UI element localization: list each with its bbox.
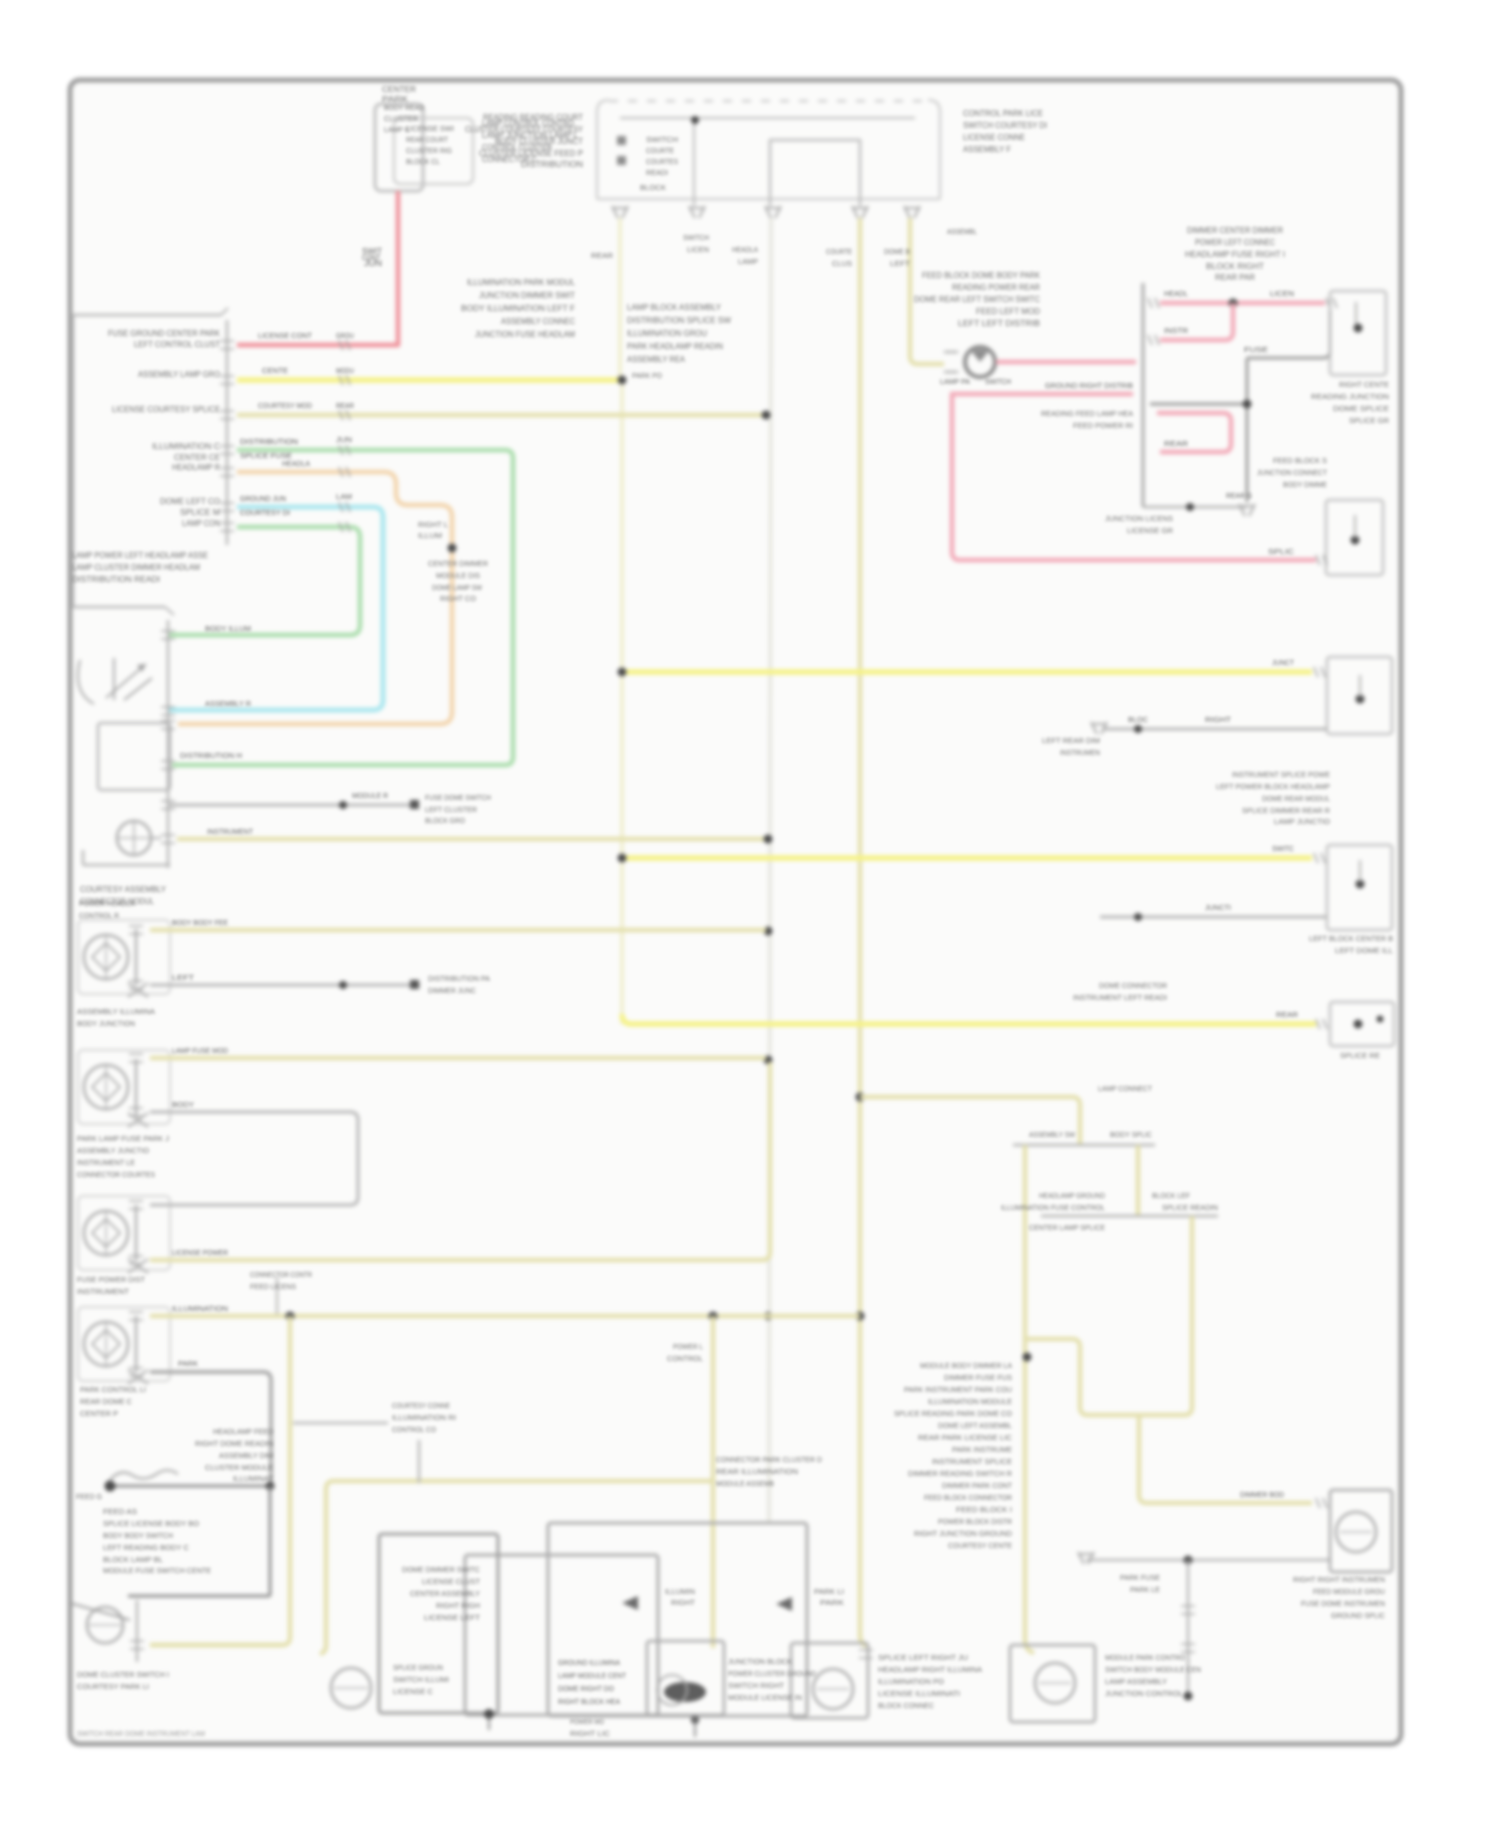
svg-text:DOME CLUSTER SWITCH I: DOME CLUSTER SWITCH I <box>77 1670 169 1679</box>
svg-text:ASSEMBL: ASSEMBL <box>947 229 977 236</box>
svg-text:GROUND RIGHT DISTRIB: GROUND RIGHT DISTRIB <box>1045 381 1133 390</box>
svg-text:SPLICE RE: SPLICE RE <box>1340 1053 1380 1060</box>
svg-text:RIGHT JUNCTION GROUND: RIGHT JUNCTION GROUND <box>914 1529 1013 1538</box>
svg-text:COURTESY PARK LI: COURTESY PARK LI <box>77 1682 149 1691</box>
svg-text:ASSEMBLY F: ASSEMBLY F <box>963 145 1011 154</box>
svg-text:GROUND ILLUMINA: GROUND ILLUMINA <box>558 1660 620 1667</box>
svg-text:BLOC: BLOC <box>1128 717 1148 724</box>
svg-text:PARK FUSE: PARK FUSE <box>1120 1575 1160 1582</box>
svg-text:REAR PARK LICENSE LIC: REAR PARK LICENSE LIC <box>918 1433 1013 1442</box>
svg-text:PARK: PARK <box>178 1361 198 1368</box>
svg-text:BODY CLUSTER JUNCT: BODY CLUSTER JUNCT <box>495 137 583 146</box>
svg-text:SWITCH RIGHT: SWITCH RIGHT <box>728 1681 784 1690</box>
svg-text:SPLICE READIN: SPLICE READIN <box>1162 1205 1218 1212</box>
svg-text:READI: READI <box>646 170 668 177</box>
svg-text:BODY READ: BODY READ <box>384 105 424 112</box>
svg-text:REAR COURT: REAR COURT <box>406 137 449 144</box>
svg-text:COURTE: COURTE <box>646 148 674 155</box>
svg-text:LAMP CLUSTER DIMMER HEADLAM: LAMP CLUSTER DIMMER HEADLAM <box>72 563 200 572</box>
svg-text:ILLUMIN: ILLUMIN <box>665 1589 695 1596</box>
svg-text:CLUSTER LICENSE FEED P: CLUSTER LICENSE FEED P <box>479 149 583 158</box>
svg-text:READING JUNCTION: READING JUNCTION <box>1311 392 1389 401</box>
svg-text:CLUSTER COURTESY COURTESY: CLUSTER COURTESY COURTESY <box>465 125 584 134</box>
svg-text:DISTRIBUTION: DISTRIBUTION <box>240 437 298 446</box>
svg-text:ILLUMINATION: ILLUMINATION <box>172 1306 228 1313</box>
svg-text:CENTE: CENTE <box>262 366 288 375</box>
svg-text:ILLUMINATION PO: ILLUMINATION PO <box>878 1677 944 1686</box>
svg-text:MODULE FUSE SWITCH CENTE: MODULE FUSE SWITCH CENTE <box>103 1566 211 1575</box>
svg-text:LEFT LEFT DISTRIB: LEFT LEFT DISTRIB <box>958 319 1040 328</box>
svg-text:ILLUMINATION RI: ILLUMINATION RI <box>392 1415 456 1422</box>
svg-text:BLOCK CONNEC: BLOCK CONNEC <box>878 1701 935 1710</box>
svg-text:POWER CLUSTER GROUND: POWER CLUSTER GROUND <box>728 1669 817 1678</box>
svg-text:RIGHT DOME READIN: RIGHT DOME READIN <box>195 1439 273 1448</box>
svg-text:LAMP: LAMP <box>738 259 758 266</box>
svg-text:LICENSE GR: LICENSE GR <box>1127 526 1174 535</box>
svg-text:BODY: BODY <box>172 1102 194 1109</box>
svg-text:LAMP CONNECT: LAMP CONNECT <box>1098 1084 1152 1093</box>
svg-text:CONNECTOR CONTR: CONNECTOR CONTR <box>250 1272 312 1279</box>
svg-text:JUNCTION LICENS: JUNCTION LICENS <box>1105 514 1173 523</box>
svg-text:ASSEMBLY LAMP GRO: ASSEMBLY LAMP GRO <box>138 370 220 379</box>
svg-text:LEFT READING BODY C: LEFT READING BODY C <box>103 1543 190 1552</box>
svg-text:JUNCTION FUSE HEADLAM: JUNCTION FUSE HEADLAM <box>475 330 575 339</box>
svg-text:LICENSE LEFT: LICENSE LEFT <box>424 1613 480 1622</box>
svg-text:BLOCK CL: BLOCK CL <box>406 159 440 166</box>
svg-text:DOME CONNECTOR: DOME CONNECTOR <box>1099 981 1168 990</box>
svg-text:FUSE POWER DIST: FUSE POWER DIST <box>77 1275 145 1284</box>
svg-text:BODY ILLUMINATION LEFT F: BODY ILLUMINATION LEFT F <box>461 304 575 313</box>
svg-text:HEADLAMP FUSE RIGHT I: HEADLAMP FUSE RIGHT I <box>1185 250 1285 259</box>
svg-text:READING FEED LAMP HEA: READING FEED LAMP HEA <box>1041 409 1133 418</box>
svg-text:FUSE GROUND CENTER PARK: FUSE GROUND CENTER PARK <box>108 329 221 338</box>
svg-text:DISTRIBUTION SPLICE SW: DISTRIBUTION SPLICE SW <box>627 316 731 325</box>
svg-text:PARK: PARK <box>820 1600 844 1607</box>
svg-text:BLOCK LEF: BLOCK LEF <box>1152 1193 1190 1200</box>
svg-text:ASSEMBLY ILLUMINA: ASSEMBLY ILLUMINA <box>77 1007 155 1016</box>
svg-text:CONTROL: CONTROL <box>667 1356 703 1363</box>
svg-text:SWITC: SWITC <box>1272 844 1295 853</box>
svg-text:RIGHT CO: RIGHT CO <box>440 596 477 603</box>
svg-text:BODY DIMME: BODY DIMME <box>1283 480 1327 489</box>
svg-text:LICEN: LICEN <box>687 247 709 254</box>
svg-text:DISTRIBUTION READI: DISTRIBUTION READI <box>72 575 160 584</box>
svg-text:DIMMER BOD: DIMMER BOD <box>1240 1490 1285 1499</box>
svg-text:POWER MO: POWER MO <box>570 1719 604 1726</box>
svg-text:SPLIC: SPLIC <box>1268 547 1295 556</box>
svg-text:JUNCTION DIMMER SWIT: JUNCTION DIMMER SWIT <box>479 291 575 300</box>
svg-text:FEED BLOCK I: FEED BLOCK I <box>956 1505 1012 1514</box>
svg-text:LICENSE SWI: LICENSE SWI <box>406 126 454 133</box>
svg-text:FEED AS: FEED AS <box>103 1507 137 1516</box>
svg-text:SPLICE LICENSE BODY BO: SPLICE LICENSE BODY BO <box>103 1519 199 1528</box>
svg-text:HEADLAMP RIGHT ILLUMINA: HEADLAMP RIGHT ILLUMINA <box>878 1665 982 1674</box>
svg-text:DOME REAR LEFT SWITCH SWITC: DOME REAR LEFT SWITCH SWITC <box>914 295 1040 304</box>
svg-text:LAMP FUSE MOD: LAMP FUSE MOD <box>172 1048 228 1055</box>
svg-text:DIMMER PARK CONT: DIMMER PARK CONT <box>942 1481 1012 1490</box>
svg-text:CONTROL R: CONTROL R <box>79 911 120 920</box>
svg-text:LICENSE COURTESY SPLICE: LICENSE COURTESY SPLICE <box>112 405 220 414</box>
svg-text:FEED BLOCK S: FEED BLOCK S <box>1273 456 1327 465</box>
svg-text:CENTER DIMMER: CENTER DIMMER <box>428 561 488 568</box>
svg-text:JUNCTION CONTROL: JUNCTION CONTROL <box>1105 1689 1183 1698</box>
svg-text:FEED POWER RI: FEED POWER RI <box>1073 421 1133 430</box>
svg-text:MODULE DIS: MODULE DIS <box>436 573 480 580</box>
svg-text:LEFT CLUSTER: LEFT CLUSTER <box>425 807 477 814</box>
svg-text:PARK PO: PARK PO <box>632 373 663 380</box>
svg-text:FEED BLOCK CONNECTOR: FEED BLOCK CONNECTOR <box>924 1493 1013 1502</box>
svg-text:REAR DOME C: REAR DOME C <box>80 1397 133 1406</box>
svg-text:INSTRUMEN: INSTRUMEN <box>1060 748 1100 757</box>
svg-text:SWITCH: SWITCH <box>646 137 678 144</box>
svg-text:LAMP ASSEMBLY: LAMP ASSEMBLY <box>1105 1677 1167 1686</box>
svg-text:CONTROL PARK LICE: CONTROL PARK LICE <box>963 109 1043 118</box>
svg-text:SWITCH: SWITCH <box>683 235 709 242</box>
svg-text:HEADLA: HEADLA <box>732 247 758 254</box>
svg-text:CONT: CONT <box>362 253 380 262</box>
svg-text:HEADLA: HEADLA <box>282 459 310 468</box>
svg-text:MODULE BODY DIMMER LA: MODULE BODY DIMMER LA <box>920 1361 1012 1370</box>
svg-text:DIMMER CENTER DIMMER: DIMMER CENTER DIMMER <box>1187 226 1283 235</box>
svg-text:ILLUMINAT: ILLUMINAT <box>233 1474 273 1483</box>
svg-text:FEED LEFT MOD: FEED LEFT MOD <box>976 307 1040 316</box>
svg-text:COURTES: COURTES <box>646 159 678 166</box>
svg-text:CLUSTER MODULE: CLUSTER MODULE <box>205 1463 273 1472</box>
svg-text:RIGHT RIGH: RIGHT RIGH <box>436 1601 480 1610</box>
svg-text:RIGHT RIGHT INSTRUMEN: RIGHT RIGHT INSTRUMEN <box>1293 1575 1385 1584</box>
svg-text:INSTRUMENT: INSTRUMENT <box>77 1287 129 1296</box>
svg-text:PARK LE: PARK LE <box>1130 1587 1160 1594</box>
svg-text:LICENSE POWER: LICENSE POWER <box>172 1250 228 1257</box>
svg-text:INSTRUMENT LE: INSTRUMENT LE <box>77 1158 135 1167</box>
svg-text:BLOCK: BLOCK <box>640 185 666 192</box>
svg-text:LEFT BLOCK CENTER B: LEFT BLOCK CENTER B <box>1309 934 1393 943</box>
svg-text:CONTROL CO: CONTROL CO <box>392 1427 437 1434</box>
svg-text:ILLUMINATION PARK MODUL: ILLUMINATION PARK MODUL <box>467 278 576 287</box>
svg-text:COURTESY CENTE: COURTESY CENTE <box>948 1541 1012 1550</box>
svg-text:COURTESY DI: COURTESY DI <box>240 508 290 517</box>
svg-text:INSTRUMENT: INSTRUMENT <box>207 827 253 836</box>
svg-text:PARK LI: PARK LI <box>814 1589 844 1596</box>
svg-text:RIGHT: RIGHT <box>1205 717 1232 724</box>
svg-text:JUNCT: JUNCT <box>1272 658 1294 667</box>
svg-text:DOME SPLICE: DOME SPLICE <box>1333 404 1389 413</box>
svg-text:SWITCH COURTESY DI: SWITCH COURTESY DI <box>963 121 1047 130</box>
svg-text:ILLUMINATION FUSE CONTROL: ILLUMINATION FUSE CONTROL <box>1001 1205 1105 1212</box>
svg-text:SWITCH ILLUMI: SWITCH ILLUMI <box>393 1677 449 1684</box>
svg-text:LEFT REAR DIM: LEFT REAR DIM <box>1042 736 1100 745</box>
svg-text:INSTRUMENT SPLICE: INSTRUMENT SPLICE <box>932 1457 1012 1466</box>
svg-text:RIGHT BLOCK HEA: RIGHT BLOCK HEA <box>558 1699 620 1706</box>
svg-text:REAR: REAR <box>1276 1010 1299 1019</box>
svg-text:DIMMER FUSE FUS: DIMMER FUSE FUS <box>944 1373 1012 1382</box>
svg-text:PARK INSTRUME: PARK INSTRUME <box>952 1445 1012 1454</box>
svg-text:GROUND SPLIC: GROUND SPLIC <box>1331 1611 1386 1620</box>
svg-text:SPLICE GROUN: SPLICE GROUN <box>393 1665 443 1672</box>
svg-text:RIGHT CENTE: RIGHT CENTE <box>1339 380 1389 389</box>
svg-text:REAR: REAR <box>591 253 613 260</box>
svg-text:PARK LAMP FUSE PARK J: PARK LAMP FUSE PARK J <box>77 1134 169 1143</box>
svg-text:BODY SPLIC: BODY SPLIC <box>1110 1132 1152 1139</box>
svg-text:LEFT POWER BLOCK HEADLAMP: LEFT POWER BLOCK HEADLAMP <box>1216 782 1330 791</box>
svg-text:JUNCTION BLOCK: JUNCTION BLOCK <box>728 1657 792 1666</box>
svg-text:ILLUMINATION MODULE: ILLUMINATION MODULE <box>928 1397 1012 1406</box>
svg-text:REAR ILLUMINATION: REAR ILLUMINATION <box>716 1467 798 1476</box>
svg-text:DISTRIBUTION PA: DISTRIBUTION PA <box>428 976 490 983</box>
svg-text:CENTER CE: CENTER CE <box>174 453 220 462</box>
svg-text:COURTE: COURTE <box>826 249 852 256</box>
svg-text:COURTESY CONNE: COURTESY CONNE <box>392 1403 450 1410</box>
svg-text:ASSEMBLY CONNEC: ASSEMBLY CONNEC <box>501 317 575 326</box>
svg-text:RIGHT LIC: RIGHT LIC <box>570 1731 610 1738</box>
svg-text:FEED G: FEED G <box>76 1494 102 1501</box>
svg-text:ILLUM: ILLUM <box>418 533 442 540</box>
svg-text:LICENSE ILLUMINATI: LICENSE ILLUMINATI <box>878 1689 960 1698</box>
svg-text:FUSE: FUSE <box>1244 345 1268 354</box>
svg-text:ILLUMINATION C: ILLUMINATION C <box>152 442 220 451</box>
svg-text:SWITCH REAR DOME INSTRUMENT LA: SWITCH REAR DOME INSTRUMENT LAM <box>77 1731 205 1738</box>
svg-text:CENTER LAMP SPLICE: CENTER LAMP SPLICE <box>1029 1225 1105 1232</box>
svg-text:ASSEMBLY R: ASSEMBLY R <box>205 699 252 708</box>
svg-text:DIMMER READING SWITCH R: DIMMER READING SWITCH R <box>908 1469 1013 1478</box>
svg-text:HEADLAMP FEED: HEADLAMP FEED <box>213 1427 274 1436</box>
svg-text:BLOCK RIGHT: BLOCK RIGHT <box>1206 262 1264 271</box>
svg-text:DOME RIGHT DO: DOME RIGHT DO <box>558 1686 615 1693</box>
svg-text:RIGHT: RIGHT <box>671 1600 696 1607</box>
svg-text:LEFT: LEFT <box>890 261 911 268</box>
svg-text:PARK: PARK <box>382 95 409 104</box>
svg-text:POWER HEADLA: POWER HEADLA <box>79 899 135 908</box>
svg-text:LEFT DOME ILL: LEFT DOME ILL <box>1335 946 1393 955</box>
svg-text:JUNCTION CONNECT: JUNCTION CONNECT <box>1257 468 1327 477</box>
svg-text:PARK INSTRUMENT PARK COU: PARK INSTRUMENT PARK COU <box>904 1385 1012 1394</box>
svg-text:REAR: REAR <box>336 401 354 410</box>
svg-text:SPLICE GR: SPLICE GR <box>1349 416 1390 425</box>
svg-text:MODULE PARK CONTRO: MODULE PARK CONTRO <box>1105 1653 1185 1662</box>
svg-text:HEADLAMP R: HEADLAMP R <box>172 463 220 472</box>
svg-text:CLUSTER: CLUSTER <box>384 116 418 123</box>
svg-text:REAR PAR: REAR PAR <box>1215 273 1255 282</box>
svg-text:FEED MODULE GROU: FEED MODULE GROU <box>1313 1587 1385 1596</box>
svg-text:LICEN: LICEN <box>1270 289 1294 298</box>
svg-text:LAMP JUNCTIO: LAMP JUNCTIO <box>1274 817 1330 826</box>
svg-text:COURTESY MOD: COURTESY MOD <box>258 401 313 410</box>
svg-text:FEED LICENS: FEED LICENS <box>250 1284 296 1291</box>
svg-text:BODY ILLUM: BODY ILLUM <box>205 624 251 633</box>
svg-text:DOME DIMMER SWITC: DOME DIMMER SWITC <box>402 1565 481 1574</box>
svg-text:LAM: LAM <box>336 492 352 501</box>
svg-text:BLOCK LAMP BL: BLOCK LAMP BL <box>103 1555 163 1564</box>
svg-text:LAMP CON: LAMP CON <box>182 519 220 528</box>
svg-text:PARK CONTROL LI: PARK CONTROL LI <box>80 1385 146 1394</box>
svg-text:CONNECTOR PARK CLUSTER D: CONNECTOR PARK CLUSTER D <box>716 1455 823 1464</box>
svg-text:POWER BLOCK DISTR: POWER BLOCK DISTR <box>938 1517 1013 1526</box>
svg-text:CLUSTER RIG: CLUSTER RIG <box>406 148 452 155</box>
svg-text:SWITCH BODY MODULE CEN: SWITCH BODY MODULE CEN <box>1105 1665 1201 1674</box>
svg-text:DOME LEFT ASSEMBL: DOME LEFT ASSEMBL <box>938 1421 1012 1430</box>
svg-text:DISTRIBUTION H: DISTRIBUTION H <box>180 751 242 760</box>
svg-text:READING READING COURT: READING READING COURT <box>483 113 583 122</box>
svg-text:BODY JUNCTION: BODY JUNCTION <box>77 1019 135 1028</box>
svg-text:CLUS: CLUS <box>832 261 852 268</box>
svg-text:LICENSE CONNE: LICENSE CONNE <box>963 133 1025 142</box>
svg-text:DOME REAR MODUL: DOME REAR MODUL <box>1262 794 1330 803</box>
svg-text:POWER L: POWER L <box>673 1344 703 1351</box>
svg-text:PARK HEADLAMP READIN: PARK HEADLAMP READIN <box>627 342 723 351</box>
svg-text:CENTER P: CENTER P <box>80 1409 118 1418</box>
svg-text:LEFT CONTROL CLUST: LEFT CONTROL CLUST <box>134 340 220 349</box>
svg-text:MODULE LICENSE IN: MODULE LICENSE IN <box>728 1693 802 1702</box>
svg-text:CONNECTOR COURTES: CONNECTOR COURTES <box>77 1170 155 1179</box>
svg-text:READING POWER REAR: READING POWER REAR <box>952 283 1040 292</box>
svg-text:LICENSE CLUST: LICENSE CLUST <box>422 1577 480 1586</box>
svg-text:SPLICE READING PARK DOME CO: SPLICE READING PARK DOME CO <box>894 1409 1012 1418</box>
svg-text:FUSE DOME SWITCH: FUSE DOME SWITCH <box>425 795 491 802</box>
svg-text:RIGHT L: RIGHT L <box>418 522 448 529</box>
svg-text:ASSEMBLY SW: ASSEMBLY SW <box>1029 1132 1075 1139</box>
svg-text:HEADL: HEADL <box>1164 289 1188 298</box>
svg-text:BODY BODY SWITCH: BODY BODY SWITCH <box>103 1531 173 1540</box>
svg-text:GROU: GROU <box>336 331 354 340</box>
svg-text:POWER LEFT CONNEC: POWER LEFT CONNEC <box>1195 238 1275 247</box>
svg-text:LEFT: LEFT <box>172 975 195 982</box>
svg-text:FEED BLOCK DOME BODY PARK: FEED BLOCK DOME BODY PARK <box>922 271 1041 280</box>
svg-text:INSTRUMENT SPLICE POWE: INSTRUMENT SPLICE POWE <box>1232 770 1330 779</box>
svg-text:REAR: REAR <box>1164 439 1189 448</box>
svg-text:JUN: JUN <box>336 435 352 444</box>
svg-text:HEADLAMP GROUND: HEADLAMP GROUND <box>1039 1193 1105 1200</box>
svg-text:REAR G: REAR G <box>1226 493 1252 500</box>
svg-text:ILLUMINATION GROU: ILLUMINATION GROU <box>627 329 707 338</box>
svg-text:LICENSE CONT: LICENSE CONT <box>258 331 312 340</box>
svg-text:SPLICE LEFT RIGHT JU: SPLICE LEFT RIGHT JU <box>878 1653 968 1662</box>
svg-text:COURTESY ASSEMBLY: COURTESY ASSEMBLY <box>80 885 167 894</box>
svg-text:LAMP MODULE CENT: LAMP MODULE CENT <box>558 1673 627 1680</box>
svg-text:MODULE R: MODULE R <box>352 793 388 800</box>
svg-text:DISTRIBUTION: DISTRIBUTION <box>521 160 583 169</box>
svg-text:MODU: MODU <box>336 366 354 375</box>
svg-text:FUSE DOME INSTRUMEN: FUSE DOME INSTRUMEN <box>1301 1599 1385 1608</box>
svg-text:LAMP POWER LEFT HEADLAMP ASSE: LAMP POWER LEFT HEADLAMP ASSE <box>72 551 208 560</box>
svg-text:LAMP BLOCK ASSEMBLY: LAMP BLOCK ASSEMBLY <box>627 303 722 312</box>
svg-text:DIMMER JUNC: DIMMER JUNC <box>428 988 476 995</box>
svg-text:INSTR: INSTR <box>1164 326 1189 335</box>
svg-text:LICENSE C: LICENSE C <box>393 1689 433 1696</box>
svg-text:ASSEMBLY JUNCTIO: ASSEMBLY JUNCTIO <box>77 1146 149 1155</box>
svg-text:INSTRUMENT LEFT READI: INSTRUMENT LEFT READI <box>1073 993 1167 1002</box>
svg-text:DOME B: DOME B <box>884 249 910 256</box>
svg-text:ASSEMBLY DIM: ASSEMBLY DIM <box>219 1451 273 1460</box>
svg-text:CENTER ASSEMBLY: CENTER ASSEMBLY <box>410 1589 480 1598</box>
svg-text:DOME LEFT CO: DOME LEFT CO <box>160 497 220 506</box>
svg-text:CENTER: CENTER <box>382 85 416 94</box>
svg-text:BLOCK GRO: BLOCK GRO <box>425 818 466 825</box>
svg-text:DOME LAMP SW: DOME LAMP SW <box>432 585 482 592</box>
svg-text:GROUND JUN: GROUND JUN <box>240 494 286 503</box>
svg-text:SWITCH: SWITCH <box>985 379 1011 386</box>
svg-text:JUNCTI: JUNCTI <box>1205 905 1231 912</box>
svg-text:SPLICE M: SPLICE M <box>180 508 220 517</box>
svg-text:SPLICE DIMMER REAR R: SPLICE DIMMER REAR R <box>1242 806 1331 815</box>
svg-text:MODULE ASSEMB: MODULE ASSEMB <box>716 1479 774 1488</box>
svg-text:BODY BODY FEE: BODY BODY FEE <box>172 920 228 927</box>
svg-text:ASSEMBLY REA: ASSEMBLY REA <box>627 355 686 364</box>
svg-text:LAMP PA: LAMP PA <box>940 379 970 386</box>
